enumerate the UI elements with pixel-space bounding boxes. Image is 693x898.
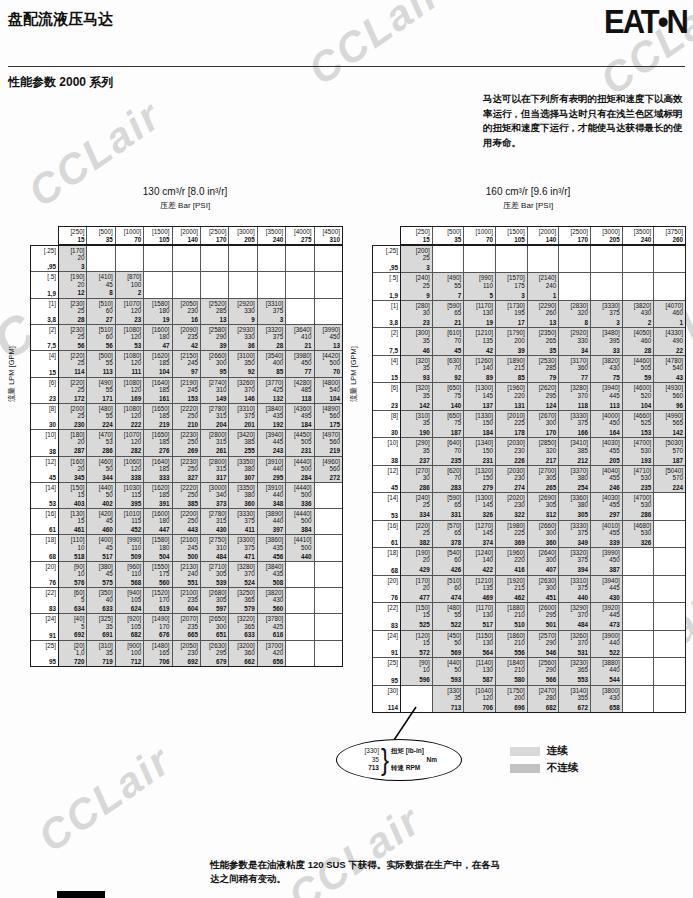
data-cell: [2680]305597	[201, 588, 228, 613]
table-body: [170]203[190]2012[410]458[870]1002[230]2…	[58, 245, 343, 667]
data-cell: [1890]21585	[496, 356, 527, 382]
data-cell: [630]7092	[433, 356, 464, 382]
data-cell: [2930]33036	[229, 325, 256, 350]
data-cell: [4780]54043	[654, 356, 685, 382]
data-cell: [4450]505231	[286, 430, 313, 455]
empty-cell	[286, 562, 313, 587]
col-header: [1000]70	[464, 227, 495, 244]
data-cell: [620]70283	[433, 466, 464, 492]
data-cell: [3910]440295	[258, 457, 285, 482]
data-cell: [240]25334	[401, 493, 432, 519]
row-label: [2]7,5	[31, 325, 58, 350]
data-cell: [1750]200696	[496, 686, 527, 712]
empty-cell	[315, 535, 342, 560]
data-cell: [4410]500440	[286, 535, 313, 560]
data-cell: [570]65378	[433, 521, 464, 547]
empty-cell	[654, 658, 685, 684]
data-cell: [270]30286	[401, 466, 432, 492]
data-cell: [380]45575	[87, 562, 114, 587]
data-cell: [2030]230274	[496, 466, 527, 492]
data-cell: [3350]380360	[229, 483, 256, 508]
col-header: [250]15	[401, 227, 432, 244]
row-label: [22]83	[373, 603, 400, 629]
data-cell: [3990]45013	[315, 325, 342, 350]
data-cell: [90]10596	[401, 658, 432, 684]
data-cell: [3990]450387	[591, 548, 622, 574]
data-cell: [650]75140	[433, 383, 464, 409]
empty-cell	[87, 246, 114, 271]
row-labels: [.25],95[.5]1,9[1]3,8[2]7,5[4]15[6]23[8]…	[372, 245, 401, 713]
data-cell: [1640]185333	[144, 457, 171, 482]
row-label: [6]23	[373, 383, 400, 409]
data-cell: [3920]445473	[591, 603, 622, 629]
data-cell: [2620]295124	[528, 383, 559, 409]
continuous-swatch	[510, 747, 540, 756]
data-cell: [4990]565142	[654, 411, 685, 437]
data-cell: [4420]50070	[315, 351, 342, 376]
data-cell: [4440]500384	[286, 509, 313, 534]
data-cell: [4280]485118	[286, 378, 313, 403]
empty-cell	[559, 273, 590, 299]
empty-cell	[623, 246, 654, 272]
empty-cell	[144, 272, 171, 297]
data-cell: [4030]455205	[591, 438, 622, 464]
data-cell: [3330]375349	[559, 521, 590, 547]
row-label: [4]15	[31, 351, 58, 376]
data-cell: [3820]430560	[258, 588, 285, 613]
data-cell: [2830]3208	[559, 301, 590, 327]
data-cell: [230]2556	[59, 325, 86, 350]
data-cell: [330]35713	[433, 686, 464, 712]
data-cell: [3370]380254	[559, 466, 590, 492]
data-cell: [460]50344	[87, 457, 114, 482]
data-cell: [1140]130587	[464, 658, 495, 684]
data-cell: [4680]530326	[623, 521, 654, 547]
row-label: [.5]1,9	[373, 273, 400, 299]
data-cell: [3320]375394	[559, 548, 590, 574]
legend-sample-speed: 713	[353, 764, 379, 772]
empty-cell	[286, 272, 313, 297]
data-cell: [320]3593	[401, 356, 432, 382]
data-cell: [3820]43075	[591, 356, 622, 382]
data-cell: [2850]320217	[528, 438, 559, 464]
data-cell: [900]100712	[116, 641, 143, 666]
empty-cell	[144, 246, 171, 271]
row-label: [6]23	[31, 378, 58, 403]
data-cell: [3780]425616	[258, 614, 285, 639]
empty-cell	[623, 658, 654, 684]
col-header: [2000]140	[528, 227, 559, 244]
pressure-axis-title: 压差 Bar [PSI]	[418, 200, 638, 211]
data-cell: [2010]225178	[496, 411, 527, 437]
data-cell: [1490]170676	[144, 614, 171, 639]
data-cell: [150]15403	[59, 483, 86, 508]
continuous-label: 连续	[547, 744, 568, 758]
data-cell: [410]458	[87, 272, 114, 297]
data-cell: [1040]120706	[464, 686, 495, 712]
empty-cell	[623, 686, 654, 712]
data-cell: [4700]530193	[623, 438, 654, 464]
col-header: [1500]105	[496, 227, 527, 244]
data-cell: [490]55171	[87, 378, 114, 403]
data-cell: [2740]310149	[201, 378, 228, 403]
data-cell: [1080]120169	[116, 378, 143, 403]
row-label: [25]95	[31, 641, 58, 666]
data-cell: [2660]300360	[528, 521, 559, 547]
data-cell: [3260]370146	[229, 378, 256, 403]
empty-cell	[591, 273, 622, 299]
data-cell: [220]25114	[59, 351, 86, 376]
data-cell: [310]35190	[401, 411, 432, 437]
empty-cell	[464, 246, 495, 272]
col-header: [1000]70	[116, 227, 143, 244]
empty-cell	[654, 576, 685, 602]
data-cell: [1300]145137	[464, 383, 495, 409]
col-header: [3000]205	[591, 227, 622, 244]
data-cell: [1070]120282	[116, 430, 143, 455]
data-cell: [3330]375166	[559, 411, 590, 437]
empty-cell	[654, 521, 685, 547]
empty-cell	[559, 246, 590, 272]
data-cell: [2100]235604	[173, 588, 200, 613]
data-cell: [3770]425132	[258, 378, 285, 403]
data-cell: [1650]185276	[144, 430, 171, 455]
data-cell: [4010]455339	[591, 521, 622, 547]
data-cell: [2630]300451	[528, 576, 559, 602]
data-cell: [3280]370524	[229, 562, 256, 587]
data-cell: [4000]450164	[591, 411, 622, 437]
data-cell: [3250]365579	[229, 588, 256, 613]
data-cell: [480]55522	[433, 603, 464, 629]
data-cell: [2150]24597	[173, 351, 200, 376]
empty-cell	[201, 246, 228, 271]
data-cell: [420]45460	[87, 509, 114, 534]
empty-cell	[315, 272, 342, 297]
data-cell: [650]75187	[433, 411, 464, 437]
data-cell: [2750]310484	[201, 535, 228, 560]
data-cell: [1060]120338	[116, 457, 143, 482]
data-cell: [3000]340373	[201, 483, 228, 508]
data-cell: [1730]19517	[496, 301, 527, 327]
data-cell: [1150]130564	[464, 631, 495, 657]
data-cell: [480]55224	[87, 404, 114, 429]
legend-sample-torque-lbin: [330]	[353, 747, 379, 755]
empty-cell	[528, 246, 559, 272]
data-cell: [1240]140422	[464, 548, 495, 574]
data-cell: [2650]300651	[201, 614, 228, 639]
data-cell: [1030]115395	[116, 483, 143, 508]
data-cell: [1980]225369	[496, 521, 527, 547]
column-headers: [250]15[500]35[1000]70[1500]105[2000]140…	[400, 226, 686, 245]
data-cell: [610]7045	[433, 328, 464, 354]
data-cell: [3360]380305	[559, 493, 590, 519]
data-cell: [3940]445243	[258, 430, 285, 455]
empty-cell	[654, 631, 685, 657]
data-cell: [4600]520104	[623, 383, 654, 409]
data-cell: [2230]250269	[173, 430, 200, 455]
data-cell: [1580]180504	[144, 535, 171, 560]
data-cell: [1210]13542	[464, 328, 495, 354]
section-subtitle: 性能参数 2000 系列	[8, 74, 113, 91]
data-cell: [4710]530235	[623, 466, 654, 492]
data-cell: [3800]430658	[591, 686, 622, 712]
empty-cell	[315, 588, 342, 613]
data-cell: [2140]2401	[528, 273, 559, 299]
data-cell: [2920]3309	[229, 299, 256, 324]
data-cell: [240]259	[401, 273, 432, 299]
data-cell: [4440]500284	[286, 457, 313, 482]
data-cell: [1570]1753	[496, 273, 527, 299]
intermittent-label: 不连续	[547, 761, 579, 775]
col-header: [500]35	[87, 227, 114, 244]
data-cell: [1010]115452	[116, 509, 143, 534]
data-cell: [3880]440544	[591, 658, 622, 684]
data-cell: [4330]49022	[654, 328, 685, 354]
data-cell: [1620]185391	[144, 483, 171, 508]
data-cell: [2220]250210	[173, 404, 200, 429]
col-header: [2500]170	[559, 227, 590, 244]
intermittent-swatch	[510, 764, 540, 773]
col-header: [3500]240	[623, 227, 654, 244]
data-cell: [440]50402	[87, 483, 114, 508]
data-cell: [960]110568	[116, 562, 143, 587]
data-cell: [2290]26013	[528, 301, 559, 327]
data-cell: [1960]220416	[496, 548, 527, 574]
empty-cell	[286, 299, 313, 324]
row-label: [14]53	[31, 483, 58, 508]
data-cell: [60]5634	[59, 588, 86, 613]
data-cell: [1520]170619	[144, 588, 171, 613]
brace-glyph: }	[381, 743, 389, 778]
flow-axis-label: 流量 LPM [GPM]	[349, 319, 359, 429]
empty-cell	[173, 246, 200, 271]
legend-sample-values: [330] 35 713	[353, 747, 379, 772]
data-cell: [3140]355672	[559, 686, 590, 712]
page-title: 盘配流液压马达	[8, 10, 113, 29]
col-header: [3500]240	[258, 227, 285, 244]
data-cell: [3890]440397	[258, 509, 285, 534]
empty-cell	[623, 576, 654, 602]
row-label: [25]95	[373, 658, 400, 684]
empty-cell	[654, 246, 685, 272]
data-cell: [1080]120111	[116, 351, 143, 376]
empty-cell	[623, 273, 654, 299]
data-cell: [4360]495184	[286, 404, 313, 429]
data-cell: [3940]445430	[591, 576, 622, 602]
empty-cell	[258, 246, 285, 271]
legend-continuous: 连续	[510, 744, 568, 758]
data-cell: [2350]26535	[528, 328, 559, 354]
data-cell: [3540]40085	[258, 351, 285, 376]
data-cell: [3860]435456	[258, 535, 285, 560]
document-page: CCLair CCLair CCLair CCLair CCLair CCLai…	[0, 0, 693, 898]
data-cell: [1080]12053	[116, 325, 143, 350]
data-cell: [320]35142	[401, 383, 432, 409]
data-cell: [2230]250327	[173, 457, 200, 482]
data-cell: [3300]375471	[229, 535, 256, 560]
empty-cell	[654, 686, 685, 712]
row-label: [.5]1,9	[31, 272, 58, 297]
data-cell: [3220]365633	[229, 614, 256, 639]
data-cell: [3840]435192	[258, 404, 285, 429]
data-cell: [4960]560272	[315, 457, 342, 482]
data-cell: [1600]180447	[144, 509, 171, 534]
data-cell: [4660]525153	[623, 411, 654, 437]
data-cell: [1320]150279	[464, 466, 495, 492]
data-cell: [2570]290546	[528, 631, 559, 657]
row-label: [20]76	[373, 576, 400, 602]
data-cell: [190]2012	[59, 272, 86, 297]
row-label: [14]53	[373, 493, 400, 519]
row-label: [10]38	[373, 438, 400, 464]
data-cell: [200]25230	[59, 404, 86, 429]
data-cell: [2560]290566	[528, 658, 559, 684]
data-cell: [2220]250385	[173, 483, 200, 508]
row-label: [24]91	[31, 614, 58, 639]
data-cell: [1170]13019	[464, 301, 495, 327]
row-label: [20]76	[31, 562, 58, 587]
row-label: [.25],95	[373, 246, 400, 272]
empty-cell	[315, 614, 342, 639]
data-cell: [2470]280682	[528, 686, 559, 712]
col-header: [3750]260	[654, 227, 685, 244]
empty-cell	[654, 548, 685, 574]
data-cell: [2800]315261	[201, 430, 228, 455]
data-cell: [4930]56096	[654, 383, 685, 409]
legend-callout: [330] 35 713 } 扭矩 [lb-in] Nm 转速 RPM	[336, 739, 462, 781]
intro-paragraph: 马达可以在下列所有表明的扭矩和速度下以高效率运行，但当选择马达时只有在浅兰色区域…	[483, 92, 689, 151]
data-cell: [490]557	[433, 273, 464, 299]
data-cell: [2800]315317	[201, 457, 228, 482]
data-cell: [510]6027	[87, 299, 114, 324]
data-cell: [2020]230322	[496, 493, 527, 519]
data-cell: [180]20287	[59, 430, 86, 455]
data-cell: [40]5692	[59, 614, 86, 639]
data-cell: [290]35237	[401, 438, 432, 464]
column-headers: [250]15[500]35[1000]70[1500]105[2000]140…	[58, 226, 343, 245]
data-cell: [3640]41021	[286, 325, 313, 350]
data-cell: [160]20345	[59, 457, 86, 482]
col-header: [3000]205	[229, 227, 256, 244]
empty-cell	[315, 246, 342, 271]
data-cell: [1480]165706	[144, 641, 171, 666]
col-header: [2000]140	[173, 227, 200, 244]
data-cell: [2520]28513	[201, 299, 228, 324]
data-cell: [1300]145326	[464, 493, 495, 519]
data-cell: [190]20429	[401, 548, 432, 574]
empty-cell	[229, 272, 256, 297]
empty-cell	[116, 246, 143, 271]
data-cell: [940]105624	[116, 588, 143, 613]
data-cell: [470]53286	[87, 430, 114, 455]
data-cell: [120]15572	[401, 631, 432, 657]
data-cell: [20]1,0720	[59, 641, 86, 666]
data-cell: [510]6056	[87, 325, 114, 350]
data-cell: [1920]215462	[496, 576, 527, 602]
data-cell: [2160]245500	[173, 535, 200, 560]
row-label: [12]45	[31, 457, 58, 482]
row-label: [10]38	[31, 430, 58, 455]
empty-cell	[315, 562, 342, 587]
data-cell: [1210]135469	[464, 576, 495, 602]
data-cell: [920]105682	[116, 614, 143, 639]
data-cell: [150]15525	[401, 603, 432, 629]
data-cell: [640]70235	[433, 438, 464, 464]
data-cell: [1580]18019	[144, 299, 171, 324]
empty-cell	[286, 246, 313, 271]
pressure-axis-title: 压差 Bar [PSI]	[75, 200, 295, 211]
data-cell: [1070]12023	[116, 299, 143, 324]
data-cell: [4800]540104	[315, 378, 342, 403]
data-cell: [4460]50559	[623, 356, 654, 382]
data-cell: [2090]23542	[173, 325, 200, 350]
empty-cell	[201, 272, 228, 297]
row-label: [1]3,8	[373, 301, 400, 327]
data-cell: [110]10518	[59, 535, 86, 560]
data-cell: [3910]440348	[258, 483, 285, 508]
data-cell: [2780]315430	[201, 509, 228, 534]
data-cell: [1640]185161	[144, 378, 171, 403]
empty-cell	[258, 272, 285, 297]
empty-cell	[286, 588, 313, 613]
page-edge-mark	[57, 891, 105, 898]
data-cell: [90]10576	[59, 562, 86, 587]
row-label: [16]61	[31, 509, 58, 534]
data-cell: [3200]360662	[229, 641, 256, 666]
data-cell: [2050]23016	[173, 299, 200, 324]
data-cell: [230]2528	[59, 299, 86, 324]
row-label: [8]30	[31, 404, 58, 429]
data-cell: [3330]375411	[229, 509, 256, 534]
data-cell: [1960]220131	[496, 383, 527, 409]
footnote-pre: 性能参数是在油液粘度	[210, 859, 308, 870]
legend-sample-torque-nm: 35	[353, 756, 379, 764]
data-cell: [3310]375440	[559, 576, 590, 602]
watermark: CCLair	[300, 0, 450, 95]
data-cell: [2710]305539	[201, 562, 228, 587]
data-cell: [3900]440522	[591, 631, 622, 657]
data-cell: [3100]35092	[229, 351, 256, 376]
legend-speed-label: 转速 RPM	[391, 764, 445, 772]
data-cell: [3820]4302	[623, 301, 654, 327]
data-cell: [3310]3753	[258, 299, 285, 324]
row-label: [2]7,5	[373, 328, 400, 354]
data-cell: [3840]435508	[258, 562, 285, 587]
data-cell: [990]110509	[116, 535, 143, 560]
data-cell: [510]60474	[433, 576, 464, 602]
empty-cell	[623, 603, 654, 629]
footnote-viscosity: 120 SUS	[308, 859, 346, 870]
data-cell: [2600]295501	[528, 603, 559, 629]
data-cell: [500]55113	[87, 351, 114, 376]
divider	[8, 66, 685, 67]
data-cell: [1330]150184	[464, 411, 495, 437]
data-cell: [3330]3753	[591, 301, 622, 327]
data-cell: [3260]370531	[559, 631, 590, 657]
data-cell: [310]35719	[87, 641, 114, 666]
data-cell: [1340]150231	[464, 438, 495, 464]
data-cell: [1170]130517	[464, 603, 495, 629]
data-cell: [170]20477	[401, 576, 432, 602]
row-label: [16]61	[373, 521, 400, 547]
data-cell: [1790]20039	[496, 328, 527, 354]
table-body: [200]253[240]259[490]557[990]1105[1570]1…	[400, 245, 686, 713]
row-labels: [.25],95[.5]1,9[1]3,8[2]7,5[4]15[6]23[8]…	[30, 245, 59, 667]
data-cell: [2190]245153	[173, 378, 200, 403]
row-label: [18]68	[373, 548, 400, 574]
data-cell: [2070]235665	[173, 614, 200, 639]
empty-cell	[286, 614, 313, 639]
